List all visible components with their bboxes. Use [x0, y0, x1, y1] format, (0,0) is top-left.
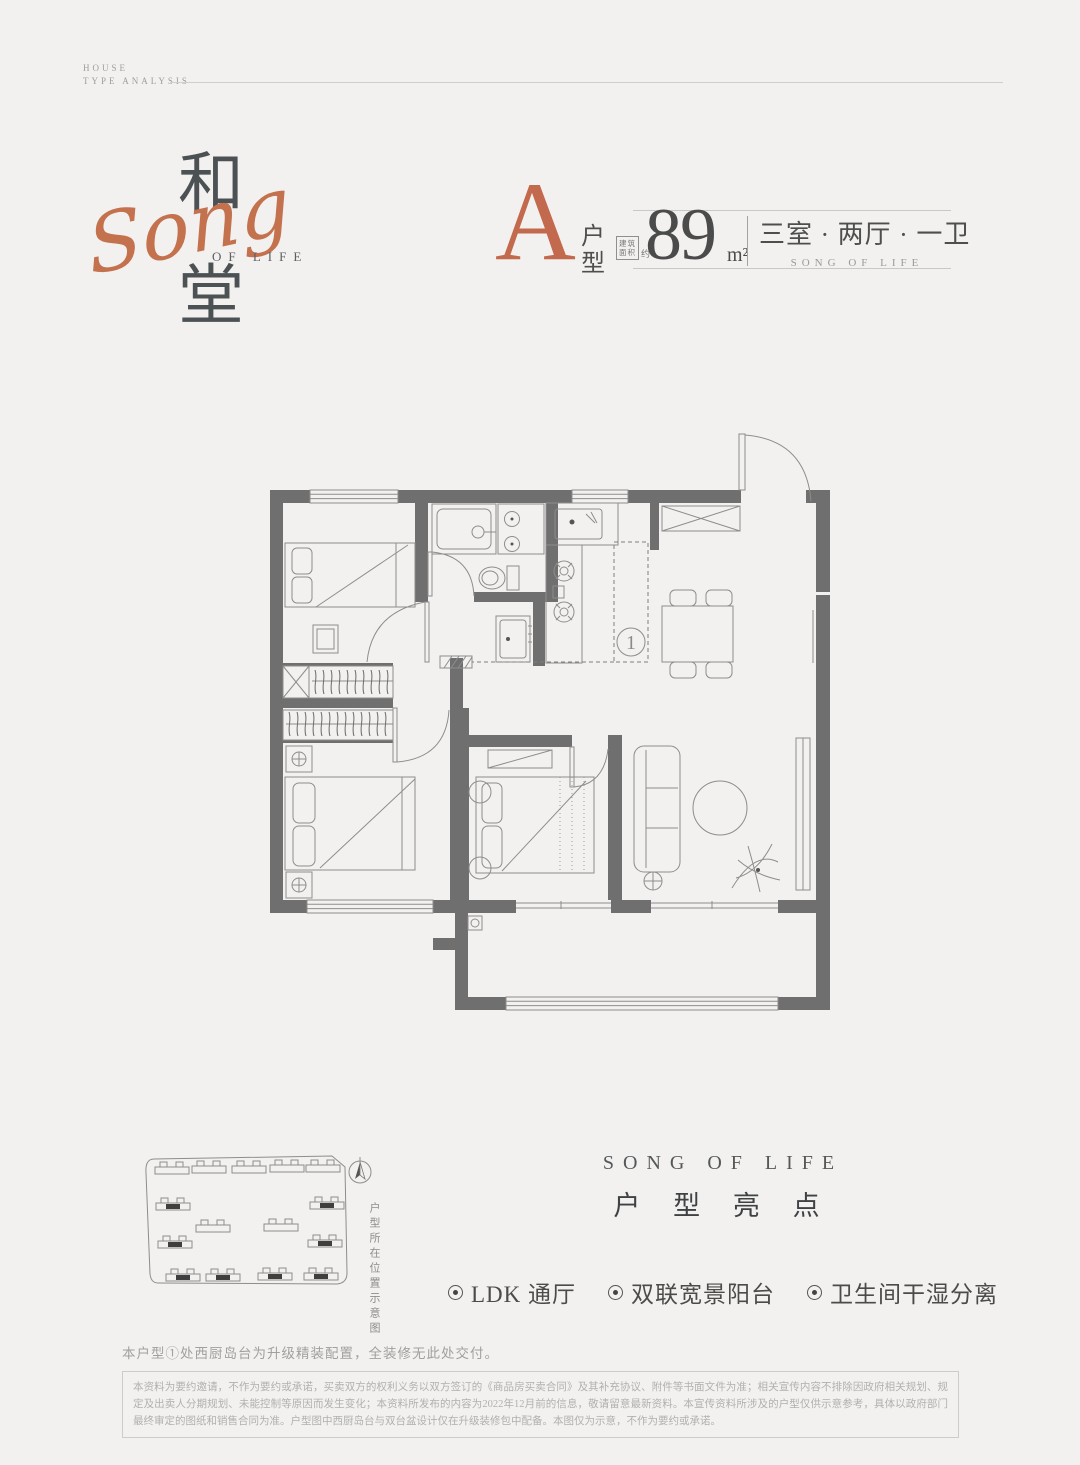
footer: 本户型①处西厨岛台为升级精装配置，全装修无此处交付。 本资料为要约邀请，不作为要… — [122, 1342, 959, 1438]
eyebrow-line1: HOUSE — [83, 62, 190, 75]
siteplan-caption: 户型所在位置示意图 — [366, 1202, 382, 1337]
floorplan-svg: 1 — [250, 420, 850, 1060]
balcony-fixtures — [468, 916, 482, 930]
highlights-eyebrow: SONG OF LIFE — [473, 1152, 973, 1175]
master-bedroom-furniture — [285, 746, 415, 898]
site-buildings — [155, 1160, 344, 1281]
area-unit: m² — [727, 244, 749, 267]
unit-headline: A 户 型 建筑 面积 约 89 m² 三室 · 两厅 · 一卫 SONG OF… — [495, 172, 965, 302]
highlight-label: 卫生间干湿分离 — [830, 1275, 998, 1309]
highlight-label: 双联宽景阳台 — [631, 1275, 775, 1309]
room-config-subtext: SONG OF LIFE — [759, 257, 955, 269]
windows — [307, 490, 830, 1010]
area-stamp-box: 建筑 面积 — [616, 236, 639, 260]
highlights-title: 户 型 亮 点 — [473, 1184, 973, 1223]
entry-and-dining — [662, 506, 740, 678]
unit-type-label: 户 型 — [579, 224, 607, 278]
room-config-text: 三室 · 两厅 · 一卫 — [759, 214, 955, 251]
highlight-item: LDK 通厅 — [448, 1275, 576, 1309]
highlight-item: 卫生间干湿分离 — [807, 1275, 998, 1309]
living-room-furniture — [634, 738, 810, 892]
unit-letter: A — [495, 172, 576, 272]
compass-icon — [349, 1157, 371, 1183]
area-value: 89 — [645, 198, 715, 272]
highlights-list: LDK 通厅 双联宽景阳台 卫生间干湿分离 — [473, 1275, 973, 1309]
brochure-page: HOUSE TYPE ANALYSIS 和 Song OF LIFE 堂 A 户… — [0, 0, 1080, 1465]
room-config: 三室 · 两厅 · 一卫 SONG OF LIFE — [759, 214, 955, 269]
bullet-icon — [608, 1285, 623, 1300]
island-number: 1 — [626, 632, 636, 654]
doors — [367, 434, 811, 787]
upgrade-note: 本户型①处西厨岛台为升级精装配置，全装修无此处交付。 — [122, 1342, 959, 1362]
bathroom-fixtures — [432, 504, 544, 662]
bedroom2-furniture — [285, 543, 415, 653]
legal-disclaimer: 本资料为要约邀请，不作为要约或承诺，买卖双方的权利义务以双方签订的《商品房买卖合… — [122, 1371, 959, 1438]
bedroom3-furniture — [469, 750, 594, 879]
divider-line — [170, 82, 1003, 83]
unit-type-char2: 型 — [579, 251, 607, 278]
eyebrow-label: HOUSE TYPE ANALYSIS — [83, 62, 190, 88]
highlights-section: SONG OF LIFE 户 型 亮 点 LDK 通厅 双联宽景阳台 卫生间干湿… — [473, 1152, 973, 1309]
bullet-icon — [807, 1285, 822, 1300]
highlight-item: 双联宽景阳台 — [608, 1275, 775, 1309]
unit-type-char1: 户 — [579, 224, 607, 251]
logo-char-bottom: 堂 — [178, 262, 244, 332]
headline-divider — [747, 216, 748, 266]
highlight-label: LDK 通厅 — [471, 1275, 576, 1309]
siteplan-svg — [138, 1148, 398, 1298]
bullet-icon — [448, 1285, 463, 1300]
